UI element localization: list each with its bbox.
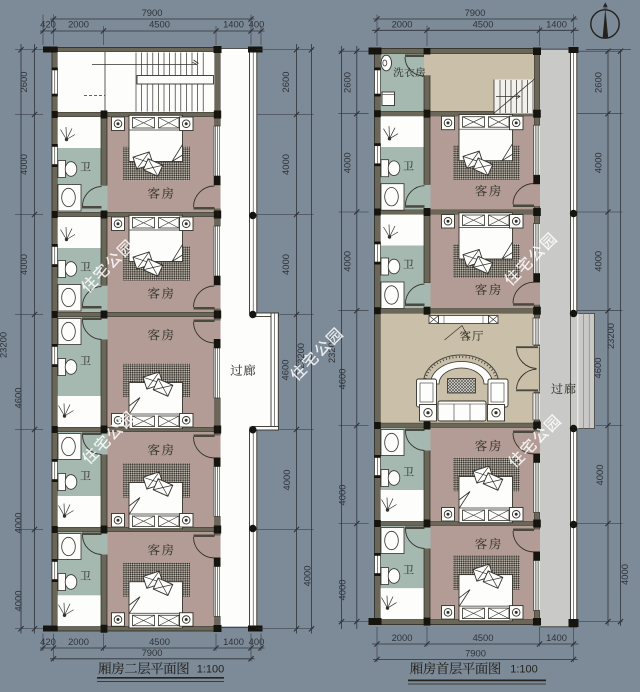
svg-text:4000: 4000 <box>593 251 604 272</box>
svg-text:1:100: 1:100 <box>510 664 538 676</box>
svg-text:4500: 4500 <box>149 19 170 30</box>
svg-text:4000: 4000 <box>280 154 291 175</box>
svg-text:4000: 4000 <box>18 254 29 275</box>
svg-text:4000: 4000 <box>280 254 291 275</box>
svg-text:2600: 2600 <box>280 72 291 93</box>
svg-text:4600: 4600 <box>280 360 291 381</box>
svg-text:4500: 4500 <box>473 632 494 643</box>
svg-text:4000: 4000 <box>342 251 353 272</box>
svg-text:1400: 1400 <box>546 19 567 30</box>
svg-text:4500: 4500 <box>473 19 494 30</box>
svg-text:4000: 4000 <box>281 470 292 491</box>
svg-text:4000: 4000 <box>13 513 24 534</box>
svg-text:2600: 2600 <box>18 72 29 93</box>
svg-text:2000: 2000 <box>392 19 413 30</box>
svg-text:7900: 7900 <box>465 648 486 659</box>
svg-text:2000: 2000 <box>392 632 413 643</box>
svg-text:4000: 4000 <box>593 152 604 173</box>
svg-text:23200: 23200 <box>0 332 9 358</box>
svg-text:23200: 23200 <box>605 323 616 349</box>
svg-text:2000: 2000 <box>68 636 89 647</box>
svg-text:1:100: 1:100 <box>197 664 225 676</box>
svg-text:4000: 4000 <box>302 566 313 587</box>
svg-text:4600: 4600 <box>13 388 24 409</box>
svg-text:4000: 4000 <box>13 591 24 612</box>
svg-text:4600: 4600 <box>592 358 603 379</box>
svg-text:2600: 2600 <box>342 72 353 93</box>
svg-text:4000: 4000 <box>342 152 353 173</box>
svg-text:2000: 2000 <box>68 19 89 30</box>
svg-text:7900: 7900 <box>142 647 163 658</box>
svg-text:4500: 4500 <box>149 636 170 647</box>
svg-text:4000: 4000 <box>594 465 605 486</box>
svg-text:7900: 7900 <box>142 7 163 18</box>
svg-text:1400: 1400 <box>223 19 244 30</box>
svg-text:7900: 7900 <box>465 7 486 18</box>
svg-text:2600: 2600 <box>593 72 604 93</box>
svg-text:1400: 1400 <box>546 632 567 643</box>
svg-text:4000: 4000 <box>18 154 29 175</box>
svg-text:1400: 1400 <box>223 636 244 647</box>
